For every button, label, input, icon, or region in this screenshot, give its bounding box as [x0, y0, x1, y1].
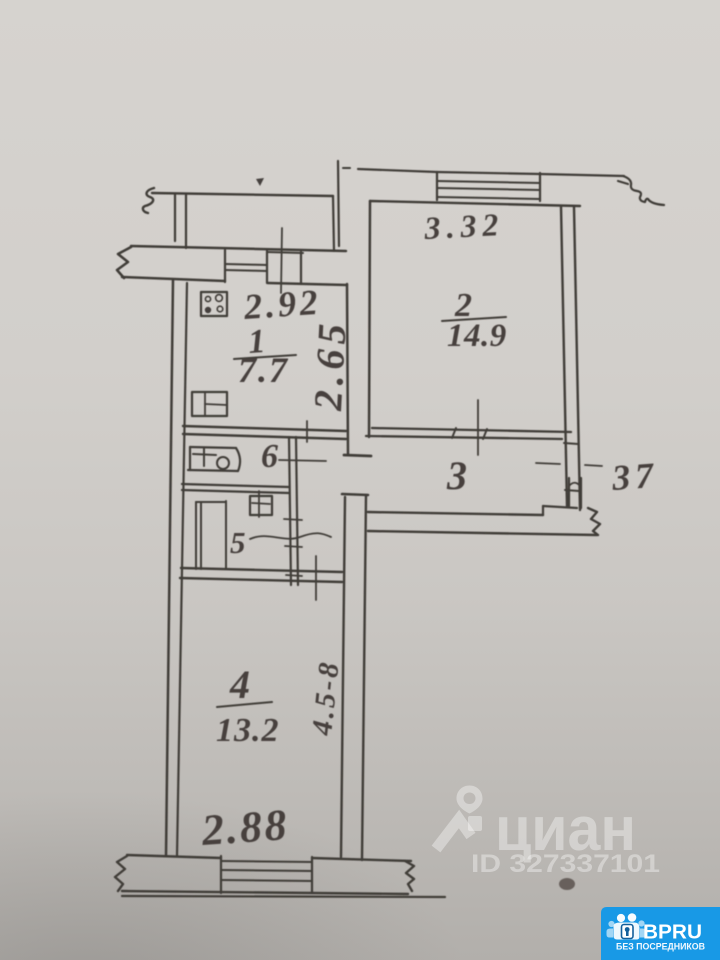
svg-text:4: 4 — [229, 662, 250, 707]
svg-text:7.7: 7.7 — [238, 350, 289, 390]
svg-text:6: 6 — [261, 438, 278, 475]
svg-text:13.2: 13.2 — [216, 712, 280, 749]
svg-text:3.32: 3.32 — [422, 206, 505, 246]
svg-text:3: 3 — [446, 453, 467, 498]
svg-text:5: 5 — [230, 525, 246, 560]
svg-text:4.5-8: 4.5-8 — [306, 658, 346, 737]
svg-text:2.65: 2.65 — [305, 317, 355, 412]
svg-text:БЕЗ ПОСРЕДНИКОВ: БЕЗ ПОСРЕДНИКОВ — [616, 941, 705, 952]
svg-text:37: 37 — [610, 455, 660, 498]
svg-text:ID 327337101: ID 327337101 — [471, 850, 660, 878]
svg-text:14.9: 14.9 — [447, 318, 507, 354]
svg-text:2.88: 2.88 — [199, 800, 290, 855]
